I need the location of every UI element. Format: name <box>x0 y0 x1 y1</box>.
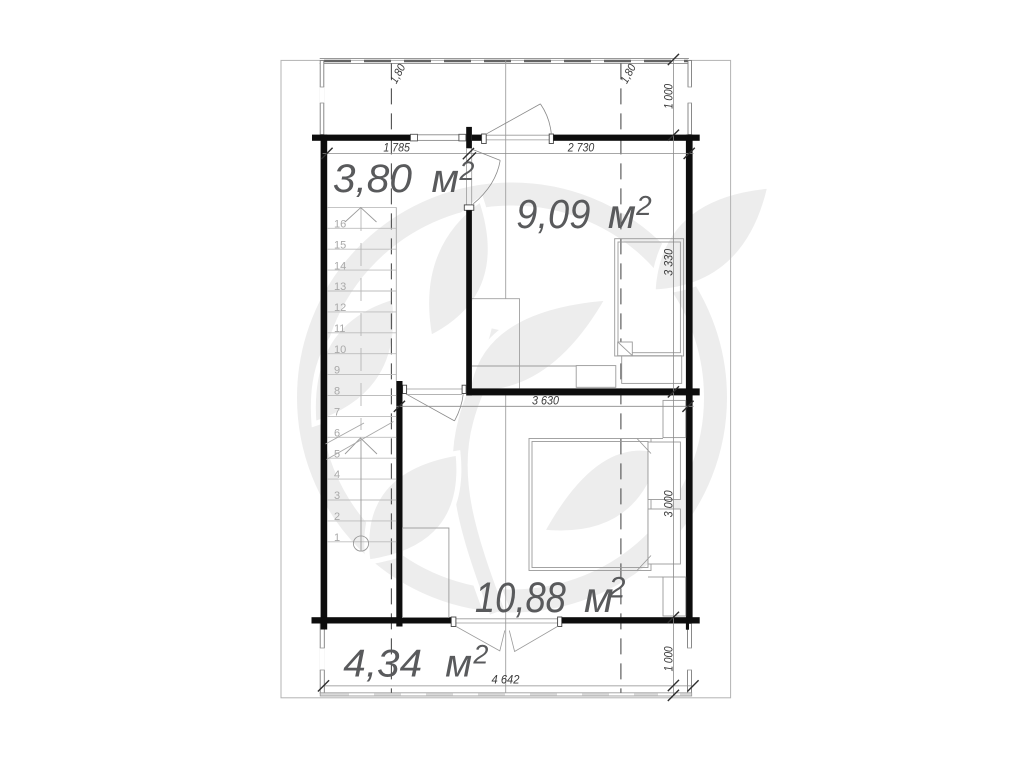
svg-text:2: 2 <box>334 511 340 523</box>
svg-text:3,80: 3,80 <box>333 157 412 201</box>
svg-text:3 000: 3 000 <box>663 490 675 518</box>
svg-text:11: 11 <box>334 323 345 335</box>
svg-text:2 730: 2 730 <box>567 143 595 155</box>
svg-text:13: 13 <box>334 281 346 293</box>
svg-text:2: 2 <box>635 190 652 221</box>
svg-text:1 000: 1 000 <box>663 83 675 109</box>
svg-text:1 000: 1 000 <box>663 646 675 672</box>
svg-text:9: 9 <box>334 365 340 377</box>
svg-text:м: м <box>445 643 472 686</box>
svg-text:14: 14 <box>334 260 346 272</box>
svg-text:2: 2 <box>608 572 626 605</box>
svg-text:10: 10 <box>334 344 346 356</box>
svg-text:2: 2 <box>472 640 488 670</box>
svg-text:8: 8 <box>334 386 340 398</box>
svg-text:12: 12 <box>334 302 346 314</box>
svg-text:1 785: 1 785 <box>383 143 410 155</box>
svg-text:2: 2 <box>458 156 474 186</box>
svg-text:3 630: 3 630 <box>532 396 560 408</box>
svg-text:3: 3 <box>334 490 340 502</box>
svg-text:м: м <box>432 157 459 201</box>
svg-text:16: 16 <box>334 219 346 231</box>
svg-text:4,34: 4,34 <box>343 643 422 686</box>
svg-text:15: 15 <box>334 240 346 252</box>
svg-text:7: 7 <box>334 407 340 419</box>
svg-text:1: 1 <box>334 532 340 544</box>
svg-text:9,09: 9,09 <box>516 191 590 237</box>
svg-text:м: м <box>608 191 636 237</box>
svg-text:4: 4 <box>334 469 340 481</box>
svg-text:10,88: 10,88 <box>475 574 566 622</box>
svg-text:4 642: 4 642 <box>492 674 521 686</box>
svg-text:3 330: 3 330 <box>663 248 675 276</box>
